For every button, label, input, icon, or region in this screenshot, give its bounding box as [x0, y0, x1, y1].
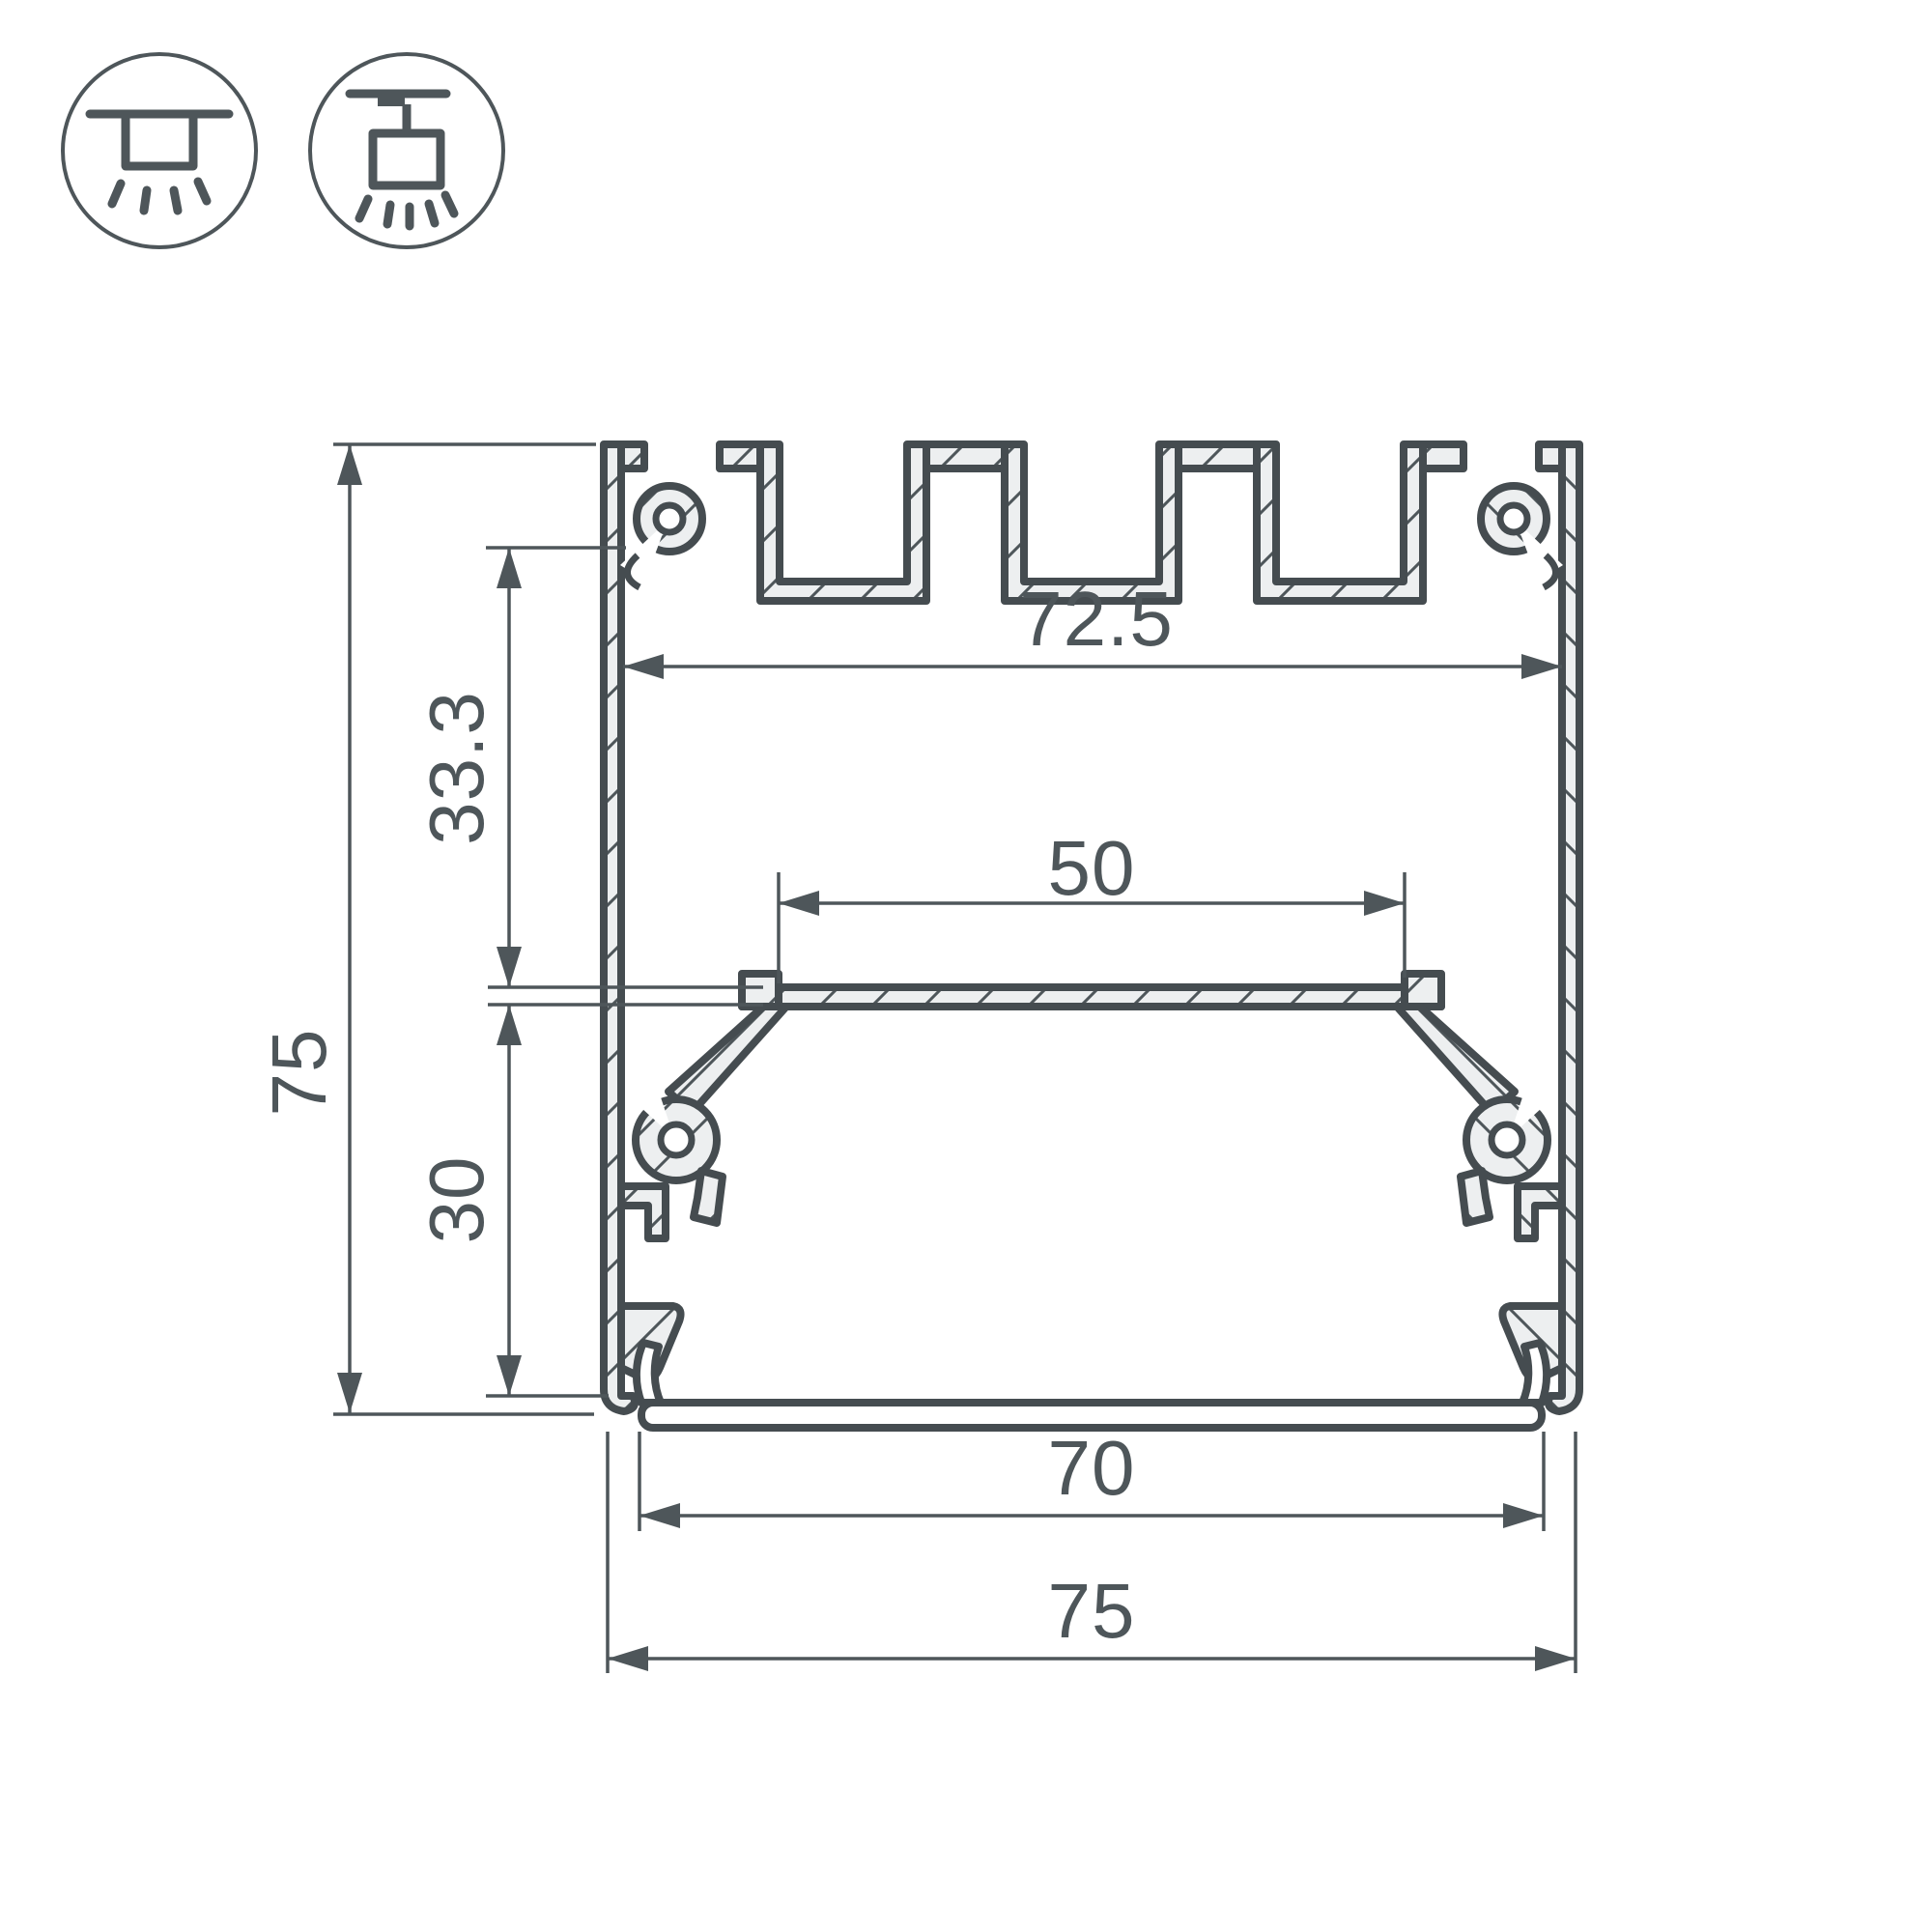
dimension-arrowheads	[337, 444, 1576, 1671]
diffuser-cover	[637, 1343, 1547, 1428]
technical-drawing-page: 72.5 50 70 75 75 33.3 30	[0, 0, 1932, 1932]
cover-end-hook	[637, 1343, 661, 1403]
dim-bottom-opening: 70	[1048, 1425, 1136, 1511]
dim-overall-height: 75	[256, 1029, 342, 1117]
surface-ceiling-mount-icon	[63, 54, 256, 247]
wall-hook	[621, 1186, 666, 1238]
suspended-pendant-mount-icon	[310, 54, 503, 247]
side-wall	[604, 444, 635, 1411]
light-rays	[112, 182, 207, 211]
boss-foot-tab	[694, 1171, 723, 1223]
dim-overall-width: 75	[1048, 1568, 1136, 1654]
light-rays	[359, 195, 454, 226]
led-platform-shelf	[742, 974, 1441, 1007]
dim-inner-width-top: 72.5	[1019, 576, 1174, 662]
dim-platform-width: 50	[1048, 825, 1136, 911]
dim-vertical-upper: 33.3	[413, 691, 499, 845]
dimension-lines	[333, 444, 1576, 1673]
dim-vertical-lower: 30	[413, 1156, 499, 1244]
profile-cross-section-drawing: 72.5 50 70 75 75 33.3 30	[0, 0, 1932, 1932]
